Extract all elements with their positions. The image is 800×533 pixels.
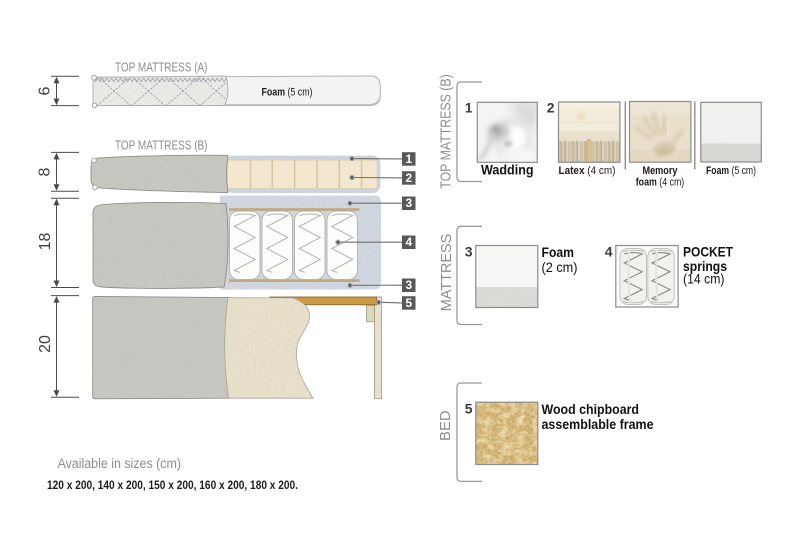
svg-text:TOP MATTRESS (B): TOP MATTRESS (B) <box>438 74 454 189</box>
svg-text:4: 4 <box>605 243 613 259</box>
svg-text:1: 1 <box>405 152 412 166</box>
svg-text:4: 4 <box>405 235 412 249</box>
svg-text:assemblable frame: assemblable frame <box>542 417 654 432</box>
svg-text:foam (4 cm): foam (4 cm) <box>636 176 685 188</box>
svg-text:TOP MATTRESS (B): TOP MATTRESS (B) <box>115 139 208 153</box>
svg-text:20: 20 <box>37 335 54 353</box>
svg-text:120 x 200, 140 x 200, 150 x 20: 120 x 200, 140 x 200, 150 x 200, 160 x 2… <box>47 478 298 492</box>
svg-text:8: 8 <box>37 167 54 176</box>
svg-text:2: 2 <box>405 171 412 185</box>
svg-text:2: 2 <box>547 100 555 116</box>
svg-text:1: 1 <box>465 100 473 116</box>
svg-text:3: 3 <box>405 278 412 292</box>
svg-text:Available in sizes (cm): Available in sizes (cm) <box>58 456 182 471</box>
svg-text:6: 6 <box>37 86 54 95</box>
svg-text:Foam (5 cm): Foam (5 cm) <box>262 86 313 98</box>
svg-text:5: 5 <box>405 296 412 310</box>
svg-text:Latex (4 cm): Latex (4 cm) <box>559 165 616 177</box>
svg-text:TOP MATTRESS (A): TOP MATTRESS (A) <box>115 61 208 75</box>
svg-text:18: 18 <box>37 233 54 251</box>
svg-text:Memory: Memory <box>643 165 678 177</box>
svg-text:(14 cm): (14 cm) <box>683 270 725 286</box>
svg-text:Foam: Foam <box>542 245 575 260</box>
svg-text:3: 3 <box>405 196 412 210</box>
svg-text:(2 cm): (2 cm) <box>542 260 578 275</box>
svg-text:BED: BED <box>438 410 454 441</box>
svg-text:5: 5 <box>465 401 473 417</box>
svg-text:3: 3 <box>465 243 473 259</box>
svg-text:Foam (5 cm): Foam (5 cm) <box>706 165 756 177</box>
svg-text:Wadding: Wadding <box>481 162 534 177</box>
svg-text:MATTRESS: MATTRESS <box>439 234 455 312</box>
svg-text:Wood chipboard: Wood chipboard <box>542 402 640 417</box>
